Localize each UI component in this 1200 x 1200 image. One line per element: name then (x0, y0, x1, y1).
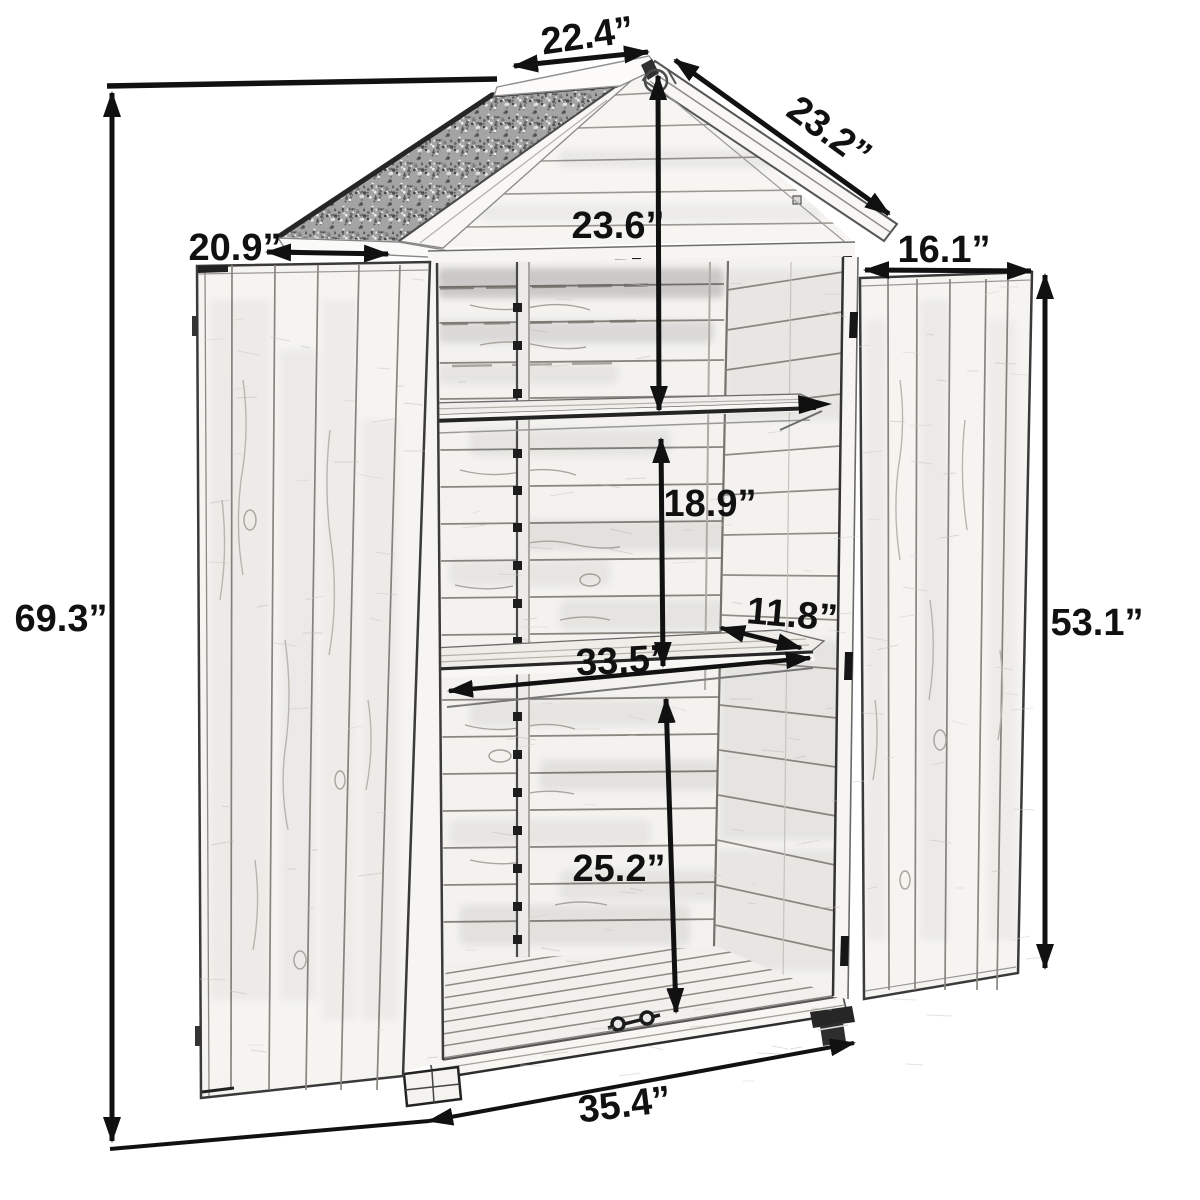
svg-text:69.3”: 69.3” (15, 598, 108, 640)
svg-text:33.5”: 33.5” (575, 638, 670, 685)
svg-text:20.9”: 20.9” (189, 227, 282, 269)
svg-text:23.6”: 23.6” (572, 205, 665, 247)
svg-text:16.1”: 16.1” (898, 229, 991, 271)
svg-text:11.8”: 11.8” (745, 590, 839, 640)
svg-text:25.2”: 25.2” (573, 848, 666, 890)
svg-text:18.9”: 18.9” (664, 483, 757, 525)
svg-text:53.1”: 53.1” (1051, 602, 1144, 644)
